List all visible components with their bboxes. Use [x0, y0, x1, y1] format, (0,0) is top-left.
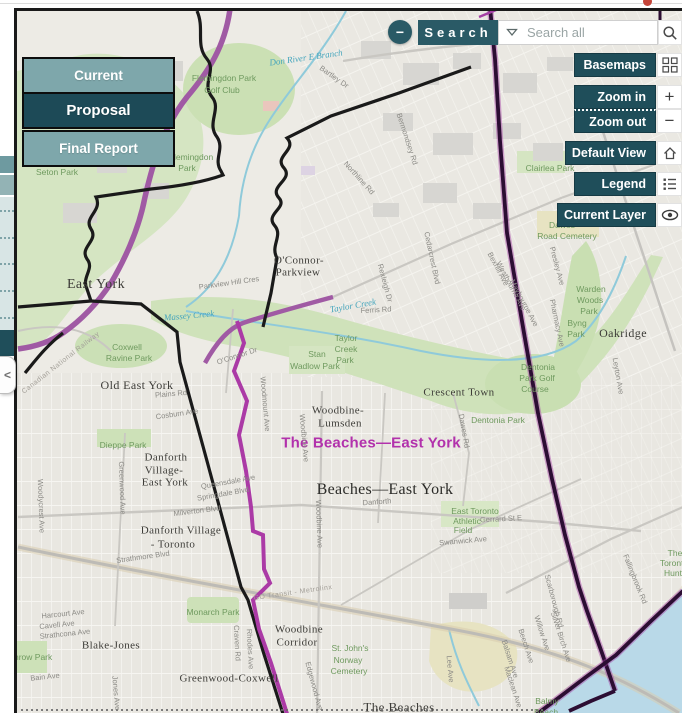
left-panel-divider	[0, 210, 14, 212]
current-layer-button[interactable]: Current Layer	[557, 203, 656, 227]
minus-icon: −	[396, 24, 404, 40]
zoom-in-button-icon-box[interactable]: +	[657, 85, 682, 109]
legend-button-icon-box[interactable]	[657, 172, 682, 196]
left-panel-divider	[0, 237, 14, 239]
search-input[interactable]	[525, 24, 650, 41]
search-bar[interactable]	[498, 20, 658, 45]
current-layer-button-icon-box[interactable]	[657, 203, 682, 227]
final-report-button[interactable]: Final Report	[22, 130, 175, 167]
search-title: Search	[418, 20, 498, 45]
left-panel-strip-dark1	[0, 156, 14, 173]
basemaps-button-icon-box[interactable]	[657, 53, 682, 77]
left-panel-divider	[0, 290, 14, 292]
panel-collapse-tab[interactable]: <	[0, 356, 16, 394]
default-view-button[interactable]: Default View	[565, 141, 656, 165]
zoom-in-button[interactable]: Zoom in	[574, 85, 656, 109]
zoom-out-button-icon-box[interactable]: −	[657, 109, 682, 133]
left-panel-strip-dark2	[0, 175, 14, 195]
left-panel-strip-footer	[0, 330, 14, 356]
basemaps-button[interactable]: Basemaps	[574, 53, 656, 77]
legend-list-icon	[662, 176, 678, 192]
minus-icon: −	[665, 111, 675, 131]
left-panel-divider	[0, 317, 14, 319]
search-collapse-button[interactable]: −	[388, 20, 412, 44]
current-button-label: Current	[74, 68, 123, 83]
legend-button[interactable]: Legend	[574, 172, 656, 196]
notification-dot	[643, 0, 652, 6]
search-submit-button[interactable]	[658, 20, 682, 45]
default-view-button-icon-box[interactable]	[657, 141, 682, 165]
chevron-down-icon[interactable]	[506, 28, 518, 37]
app-page: East YorkOld East YorkO'Connor-ParkviewW…	[0, 0, 682, 720]
eye-icon	[661, 208, 679, 222]
home-icon	[662, 145, 678, 161]
final-report-button-label: Final Report	[59, 141, 138, 156]
proposal-button-label: Proposal	[66, 102, 130, 119]
plus-icon: +	[665, 87, 675, 107]
zoom-out-button[interactable]: Zoom out	[574, 109, 656, 133]
search-icon	[662, 25, 678, 41]
page-top-divider	[0, 3, 682, 4]
current-button[interactable]: Current	[22, 57, 175, 94]
left-panel-divider	[0, 263, 14, 265]
proposal-button[interactable]: Proposal	[22, 92, 175, 129]
chevron-left-icon: <	[4, 368, 11, 382]
basemaps-grid-icon	[662, 57, 678, 73]
